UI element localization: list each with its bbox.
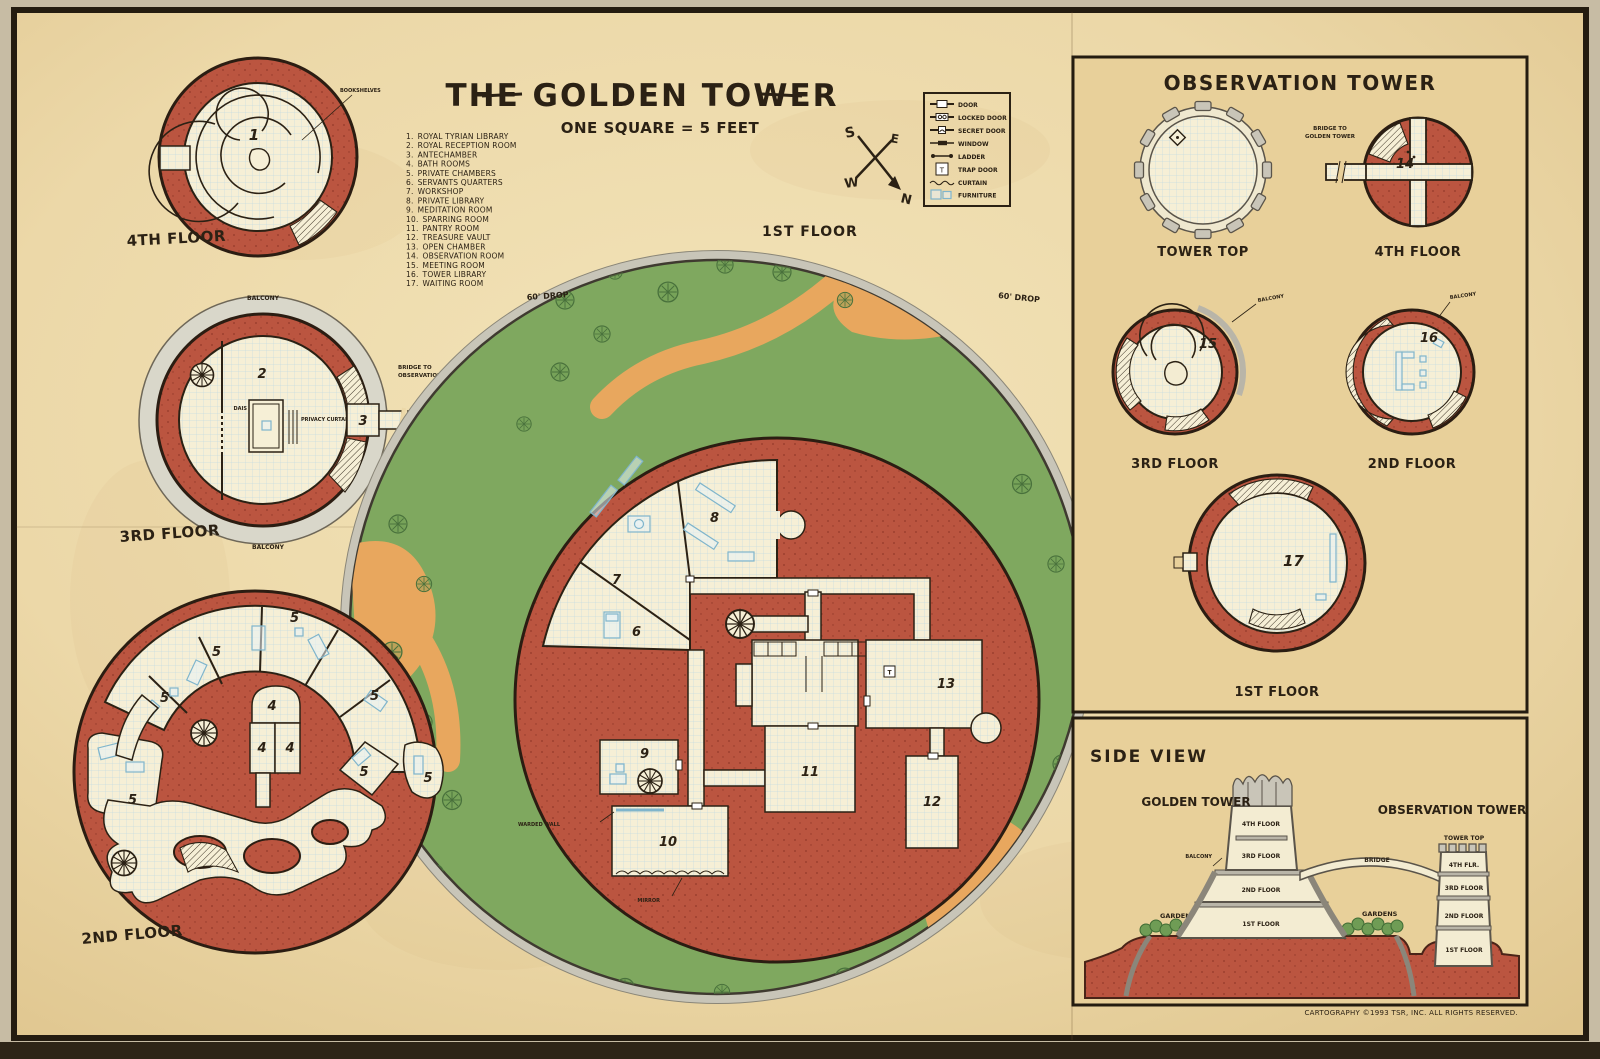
ot-bridge-stub bbox=[1326, 164, 1366, 180]
ot-tower-top-label: TOWER TOP bbox=[1157, 245, 1249, 260]
fan-alcove bbox=[777, 511, 805, 539]
room-mark-13: 13 bbox=[937, 677, 955, 692]
bridge-section-label: BRIDGE bbox=[1364, 857, 1389, 864]
ot-2nd-floor-label: 2ND FLOOR bbox=[1368, 457, 1457, 472]
workshop-desk bbox=[628, 516, 650, 532]
ot1-entry bbox=[1183, 553, 1197, 571]
observation-tower-title: OBSERVATION TOWER bbox=[1164, 71, 1437, 95]
room-mark-3: 3 bbox=[358, 414, 367, 429]
spiral-stairs-west bbox=[112, 851, 137, 876]
gt-section-balcony: BALCONY bbox=[1185, 854, 1212, 860]
legend-secret-door-label: SECRET DOOR bbox=[958, 128, 1006, 135]
room-mark-4c: 4 bbox=[284, 741, 294, 756]
legend-trap-door-symbol: T bbox=[936, 163, 948, 175]
bath-corridor bbox=[256, 773, 270, 807]
gt-section-3rd: 3RD FLOOR bbox=[1242, 853, 1281, 860]
observation-tower-panel: OBSERVATION TOWER TOWER TOP bbox=[1073, 57, 1527, 712]
warded-wall-note: WARDED WALL bbox=[518, 822, 561, 828]
legend-locked-door-label: LOCKED DOOR bbox=[958, 115, 1007, 122]
room-mark-8: 8 bbox=[710, 511, 719, 526]
ot-3rd-floor-label: 3RD FLOOR bbox=[1131, 457, 1219, 472]
room-list-item: 2.ROYAL RECEPTION ROOM bbox=[406, 141, 517, 150]
room-mark-11: 11 bbox=[801, 765, 819, 780]
bridge-to-observation-l1: BRIDGE TO bbox=[398, 365, 432, 371]
room-mark-5a: 5 bbox=[160, 691, 169, 706]
room-list-item: 16.TOWER LIBRARY bbox=[406, 270, 486, 279]
room-mark-5b: 5 bbox=[212, 645, 221, 660]
room-mark-6: 6 bbox=[632, 625, 641, 640]
room-list-item: 11.PANTRY ROOM bbox=[406, 224, 479, 233]
gt-section-2nd: 2ND FLOOR bbox=[1242, 887, 1281, 894]
room-list-item: 17.WAITING ROOM bbox=[406, 279, 483, 288]
ot-section-1st: 1ST FLOOR bbox=[1445, 947, 1483, 954]
golden-tower-section-label: GOLDEN TOWER bbox=[1141, 795, 1250, 809]
gt-section-4th: 4TH FLOOR bbox=[1242, 821, 1280, 828]
spiral-stairs bbox=[191, 364, 214, 387]
side-view-title: SIDE VIEW bbox=[1090, 747, 1208, 767]
corridor-west bbox=[688, 650, 704, 806]
trap-door-marker: T bbox=[884, 666, 895, 677]
room-list-item: 1.ROYAL TYRIAN LIBRARY bbox=[406, 132, 509, 141]
room-mark-5c: 5 bbox=[290, 611, 299, 626]
ot-4th-floor-label: 4TH FLOOR bbox=[1375, 245, 1462, 260]
spiral-stairs-corridor bbox=[726, 610, 754, 638]
cluster-side-room bbox=[736, 664, 752, 706]
ot-section-2nd: 2ND FLOOR bbox=[1445, 913, 1484, 920]
spiral-stairs-meditation bbox=[638, 769, 662, 793]
room-list-item: 5.PRIVATE CHAMBERS bbox=[406, 169, 496, 178]
room-mark-7: 7 bbox=[612, 573, 622, 588]
svg-text:T: T bbox=[939, 167, 945, 175]
legend-window-label: WINDOW bbox=[958, 141, 989, 148]
gt-1st-floor-label: 1ST FLOOR bbox=[762, 224, 858, 240]
dais-note: DAIS bbox=[234, 406, 248, 412]
ot-section-crenels bbox=[1439, 844, 1486, 852]
room-mark-1: 1 bbox=[249, 126, 259, 144]
map-title: THE GOLDEN TOWER bbox=[446, 78, 839, 114]
compass-west: W bbox=[843, 175, 860, 192]
balcony-label-top: BALCONY bbox=[247, 295, 280, 302]
copyright-credit: CARTOGRAPHY ©1993 TSR, INC. ALL RIGHTS R… bbox=[1304, 1009, 1518, 1017]
room-mark-5d: 5 bbox=[370, 689, 379, 704]
room-mark-17: 17 bbox=[1283, 552, 1304, 570]
ot3-statue bbox=[1165, 362, 1187, 385]
legend-trap-door-label: TRAP DOOR bbox=[958, 167, 998, 174]
mirror-note: MIRROR bbox=[637, 898, 660, 904]
corridor-stair-stub bbox=[746, 616, 808, 632]
room-mark-16: 16 bbox=[1420, 331, 1438, 346]
room-mark-14: 14 bbox=[1396, 157, 1414, 172]
room-mark-15: 15 bbox=[1199, 337, 1217, 352]
map-scale-note: ONE SQUARE = 5 FEET bbox=[561, 119, 760, 137]
corridor-link bbox=[704, 770, 765, 786]
ot1-bench bbox=[1330, 534, 1336, 582]
legend-ladder-label: LADDER bbox=[958, 154, 986, 161]
ot-section-3rd: 3RD FLOOR bbox=[1445, 885, 1484, 892]
corridor-vault bbox=[930, 728, 944, 756]
statue-center bbox=[250, 149, 270, 170]
observation-tower-section-label: OBSERVATION TOWER bbox=[1378, 803, 1526, 817]
room-list-item: 8.PRIVATE LIBRARY bbox=[406, 196, 485, 205]
room-list-item: 3.ANTECHAMBER bbox=[406, 150, 477, 159]
side-view-panel: SIDE VIEW GARDENS GARDENS 4TH FLOOR 3RD … bbox=[1073, 718, 1527, 1005]
room-mark-5g: 5 bbox=[423, 771, 432, 786]
room-mark-10: 10 bbox=[659, 835, 677, 850]
spiral-stairs-center bbox=[191, 720, 217, 746]
legend-furniture-label: FURNITURE bbox=[958, 193, 997, 200]
room-list-item: 10.SPARRING ROOM bbox=[406, 215, 489, 224]
ot-section-top-label: TOWER TOP bbox=[1444, 835, 1485, 842]
west-landing bbox=[160, 146, 190, 170]
ot-section-4th: 4TH FLR. bbox=[1449, 862, 1479, 869]
legend-door-label: DOOR bbox=[958, 102, 978, 109]
throne bbox=[262, 421, 271, 430]
room-list-item: 13.OPEN CHAMBER bbox=[406, 242, 486, 251]
balcony-label-bottom: BALCONY bbox=[252, 544, 285, 551]
room-list-item: 9.MEDITATION ROOM bbox=[406, 206, 493, 215]
room-mark-12: 12 bbox=[923, 795, 941, 810]
bridge-to-golden-l1: BRIDGE TO bbox=[1313, 126, 1347, 132]
map-canvas: THE GOLDEN TOWER ONE SQUARE = 5 FEET 1.R… bbox=[0, 0, 1600, 1059]
golden-tower-map: THE GOLDEN TOWER ONE SQUARE = 5 FEET 1.R… bbox=[0, 0, 1600, 1059]
room-list-item: 6.SERVANTS QUARTERS bbox=[406, 178, 503, 187]
gt-section-1st: 1ST FLOOR bbox=[1242, 921, 1280, 928]
open-chamber bbox=[866, 640, 982, 728]
legend-furniture-symbol bbox=[931, 190, 951, 199]
ot-1st-floor-label: 1ST FLOOR bbox=[1234, 685, 1319, 700]
chamber-alcove bbox=[971, 713, 1001, 743]
room-mark-9: 9 bbox=[640, 747, 649, 762]
room-mark-2: 2 bbox=[257, 367, 266, 382]
bookshelves-note: BOOKSHELVES bbox=[340, 88, 381, 94]
legend-curtain-label: CURTAIN bbox=[958, 180, 987, 187]
room-mark-4b: 4 bbox=[256, 741, 266, 756]
golden-tower-1st-floor-plan: 8 7 6 9 10 WARDED WALL MIRROR 11 T 13 12 bbox=[515, 438, 1039, 962]
gardens-label-right: GARDENS bbox=[1362, 910, 1398, 918]
bridge-to-golden-l2: GOLDEN TOWER bbox=[1305, 134, 1356, 140]
room-list-item: 15.MEETING ROOM bbox=[406, 261, 485, 270]
room-mark-4a: 4 bbox=[266, 699, 276, 714]
room-mark-5f: 5 bbox=[359, 765, 368, 780]
